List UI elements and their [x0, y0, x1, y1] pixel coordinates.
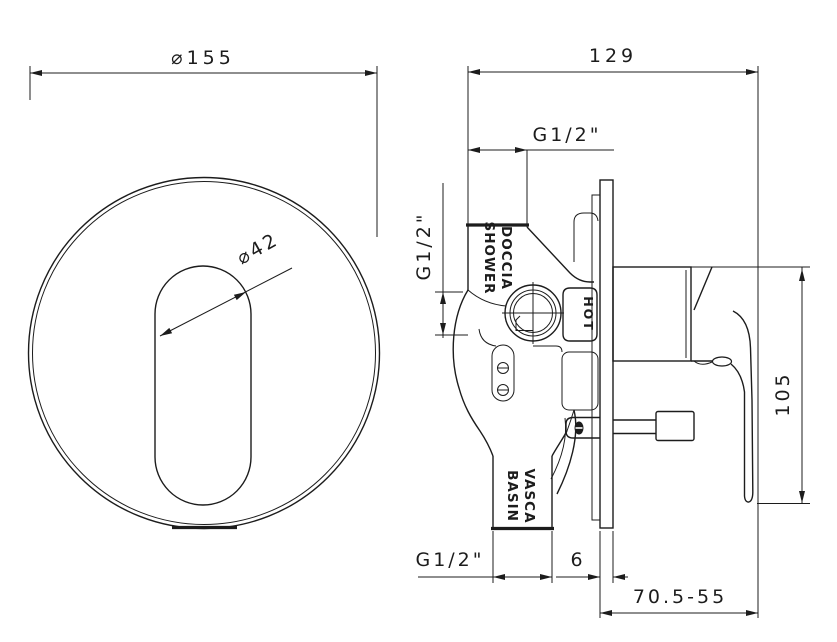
- wall-plate: [600, 180, 613, 528]
- plate-inner-circle: [33, 182, 376, 525]
- depth-range-label: 70.5-55: [633, 586, 727, 608]
- cutout-diameter-label: ⌀42: [233, 228, 283, 269]
- dim-plate-thickness: 6: [556, 531, 628, 618]
- dim-arrow: [746, 69, 758, 75]
- upper-lug: [574, 213, 598, 262]
- dim-height: 105: [757, 267, 810, 504]
- dim-top-thread: G1/2": [468, 124, 614, 153]
- overall-width-label: 129: [589, 45, 637, 67]
- lower-lug: [562, 352, 598, 410]
- dim-arrow: [588, 574, 600, 580]
- spout-inner-curve: [551, 418, 566, 479]
- spout-top-curve: [567, 410, 574, 431]
- dim-arrow: [540, 574, 552, 580]
- inlet-thread-label: G1/2": [413, 211, 435, 280]
- handle-neck-back: [694, 267, 712, 310]
- wall-plate-seal: [592, 195, 600, 520]
- dim-arrow: [468, 147, 480, 153]
- dim-arrow: [600, 610, 612, 616]
- basin-port-label: VASCA BASIN: [504, 468, 537, 523]
- body-corner-arc: [479, 329, 496, 346]
- shower-port-label-line1: DOCCIA: [498, 226, 514, 290]
- dim-arrow: [493, 574, 505, 580]
- basin-port-label-line2: BASIN: [504, 470, 520, 522]
- dim-arrow: [365, 70, 377, 76]
- dim-arrow: [440, 323, 446, 335]
- handle-neck-front: [733, 311, 753, 502]
- mixer-valve-drawing: ⌀155 ⌀42: [0, 0, 837, 642]
- side-view: 129 G1/2" G1/2" 105: [413, 45, 810, 618]
- basin-port-label-line1: VASCA: [521, 468, 537, 523]
- dim-inlet-thread: G1/2": [413, 183, 468, 338]
- shower-port-label: DOCCIA SHOWER: [481, 221, 514, 294]
- handle-cutout-oval: [155, 266, 251, 505]
- plate-thickness-label: 6: [570, 549, 585, 571]
- handle-setscrew-dome: [713, 357, 732, 366]
- dim-arrow: [799, 491, 805, 503]
- dim-arrow: [234, 292, 246, 300]
- dim-depth-range: 70.5-55: [600, 586, 758, 616]
- dim-arrow: [746, 610, 758, 616]
- plate-outer-circle: [29, 178, 380, 529]
- dim-arrow: [160, 328, 172, 336]
- handle-housing: [613, 267, 691, 361]
- hot-inlet-keyway: [516, 316, 533, 331]
- plate-diameter-label: ⌀155: [171, 47, 235, 69]
- hot-label: HOT: [581, 296, 596, 332]
- dim-arrow: [440, 292, 446, 304]
- dim-arrow: [468, 69, 480, 75]
- pin-knob: [656, 412, 694, 441]
- dim-arrow: [515, 147, 527, 153]
- boss-bottom-line: [533, 346, 562, 352]
- hot-label-text: HOT: [581, 296, 596, 332]
- body-top-diagonal: [527, 227, 594, 282]
- body-left-outline: [453, 290, 493, 456]
- handle-blade-back: [731, 364, 749, 502]
- bottom-thread-label: G1/2": [415, 549, 484, 571]
- height-label: 105: [772, 371, 794, 416]
- dim-arrow: [613, 574, 625, 580]
- dim-cutout-diameter: ⌀42: [160, 228, 292, 336]
- basin-port-shoulder: [552, 431, 567, 456]
- technical-drawing-page: ⌀155 ⌀42: [0, 0, 837, 642]
- dim-bottom-thread: G1/2": [415, 531, 552, 583]
- front-view: ⌀155 ⌀42: [29, 47, 380, 529]
- dim-plate-diameter: ⌀155: [30, 47, 377, 237]
- top-thread-label: G1/2": [532, 124, 601, 146]
- dim-arrow: [799, 269, 805, 281]
- dim-arrow: [30, 70, 42, 76]
- shower-port-label-line2: SHOWER: [481, 221, 497, 294]
